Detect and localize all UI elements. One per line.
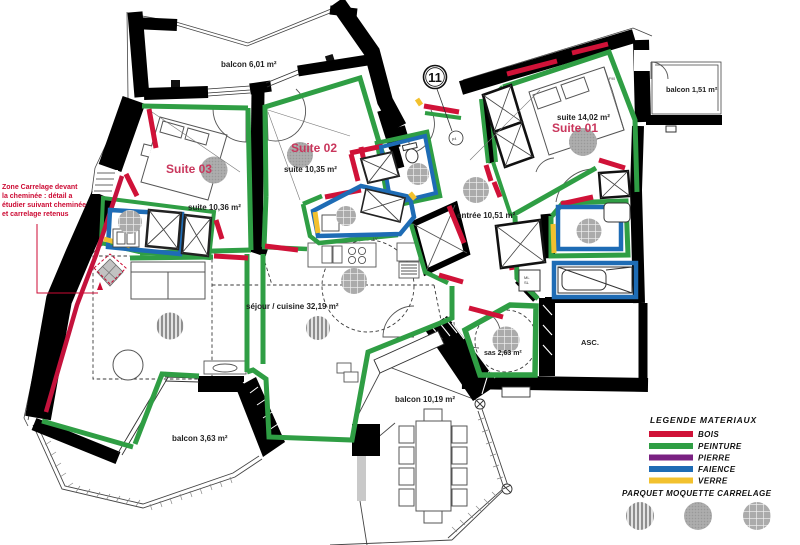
svg-text:étudier suivant cheminée: étudier suivant cheminée (2, 202, 86, 209)
svg-text:PEINTURE: PEINTURE (698, 442, 742, 451)
svg-text:PIERRE: PIERRE (698, 454, 730, 463)
svg-text:suite 10,36 m²: suite 10,36 m² (188, 203, 241, 212)
svg-text:et carrelage retenus: et carrelage retenus (2, 211, 69, 218)
svg-text:ASC.: ASC. (581, 338, 599, 347)
svg-text:F90: F90 (609, 77, 615, 81)
svg-text:Suite 03: Suite 03 (166, 162, 212, 176)
svg-text:suite 10,35 m²: suite 10,35 m² (284, 165, 337, 174)
svg-text:balcon 6,01 m²: balcon 6,01 m² (221, 60, 277, 69)
svg-text:p4: p4 (452, 136, 457, 141)
svg-text:Suite 01: Suite 01 (552, 121, 598, 135)
svg-text:SL: SL (524, 280, 530, 285)
svg-text:séjour / cuisine 32,19 m²: séjour / cuisine 32,19 m² (246, 302, 339, 311)
svg-text:Zone Carrelage devant: Zone Carrelage devant (2, 184, 78, 191)
svg-text:LEGENDE MATERIAUX: LEGENDE MATERIAUX (650, 415, 757, 425)
svg-text:11: 11 (428, 70, 442, 85)
svg-text:PARQUET MOQUETTE CARRELAGE: PARQUET MOQUETTE CARRELAGE (622, 489, 772, 498)
svg-text:LV: LV (373, 236, 378, 241)
svg-text:Suite 02: Suite 02 (291, 141, 337, 155)
svg-text:balcon 1,51 m²: balcon 1,51 m² (666, 85, 718, 94)
svg-text:BOIS: BOIS (698, 430, 719, 439)
svg-text:FAIENCE: FAIENCE (698, 465, 736, 474)
svg-text:balcon 10,19 m²: balcon 10,19 m² (395, 395, 455, 404)
svg-text:VERRE: VERRE (698, 477, 728, 486)
svg-text:entrée 10,51 m²: entrée 10,51 m² (457, 211, 516, 220)
svg-text:balcon 3,63 m²: balcon 3,63 m² (172, 434, 228, 443)
svg-text:sas 2,63 m²: sas 2,63 m² (484, 350, 522, 357)
svg-text:la cheminée : détail a: la cheminée : détail a (2, 193, 73, 200)
